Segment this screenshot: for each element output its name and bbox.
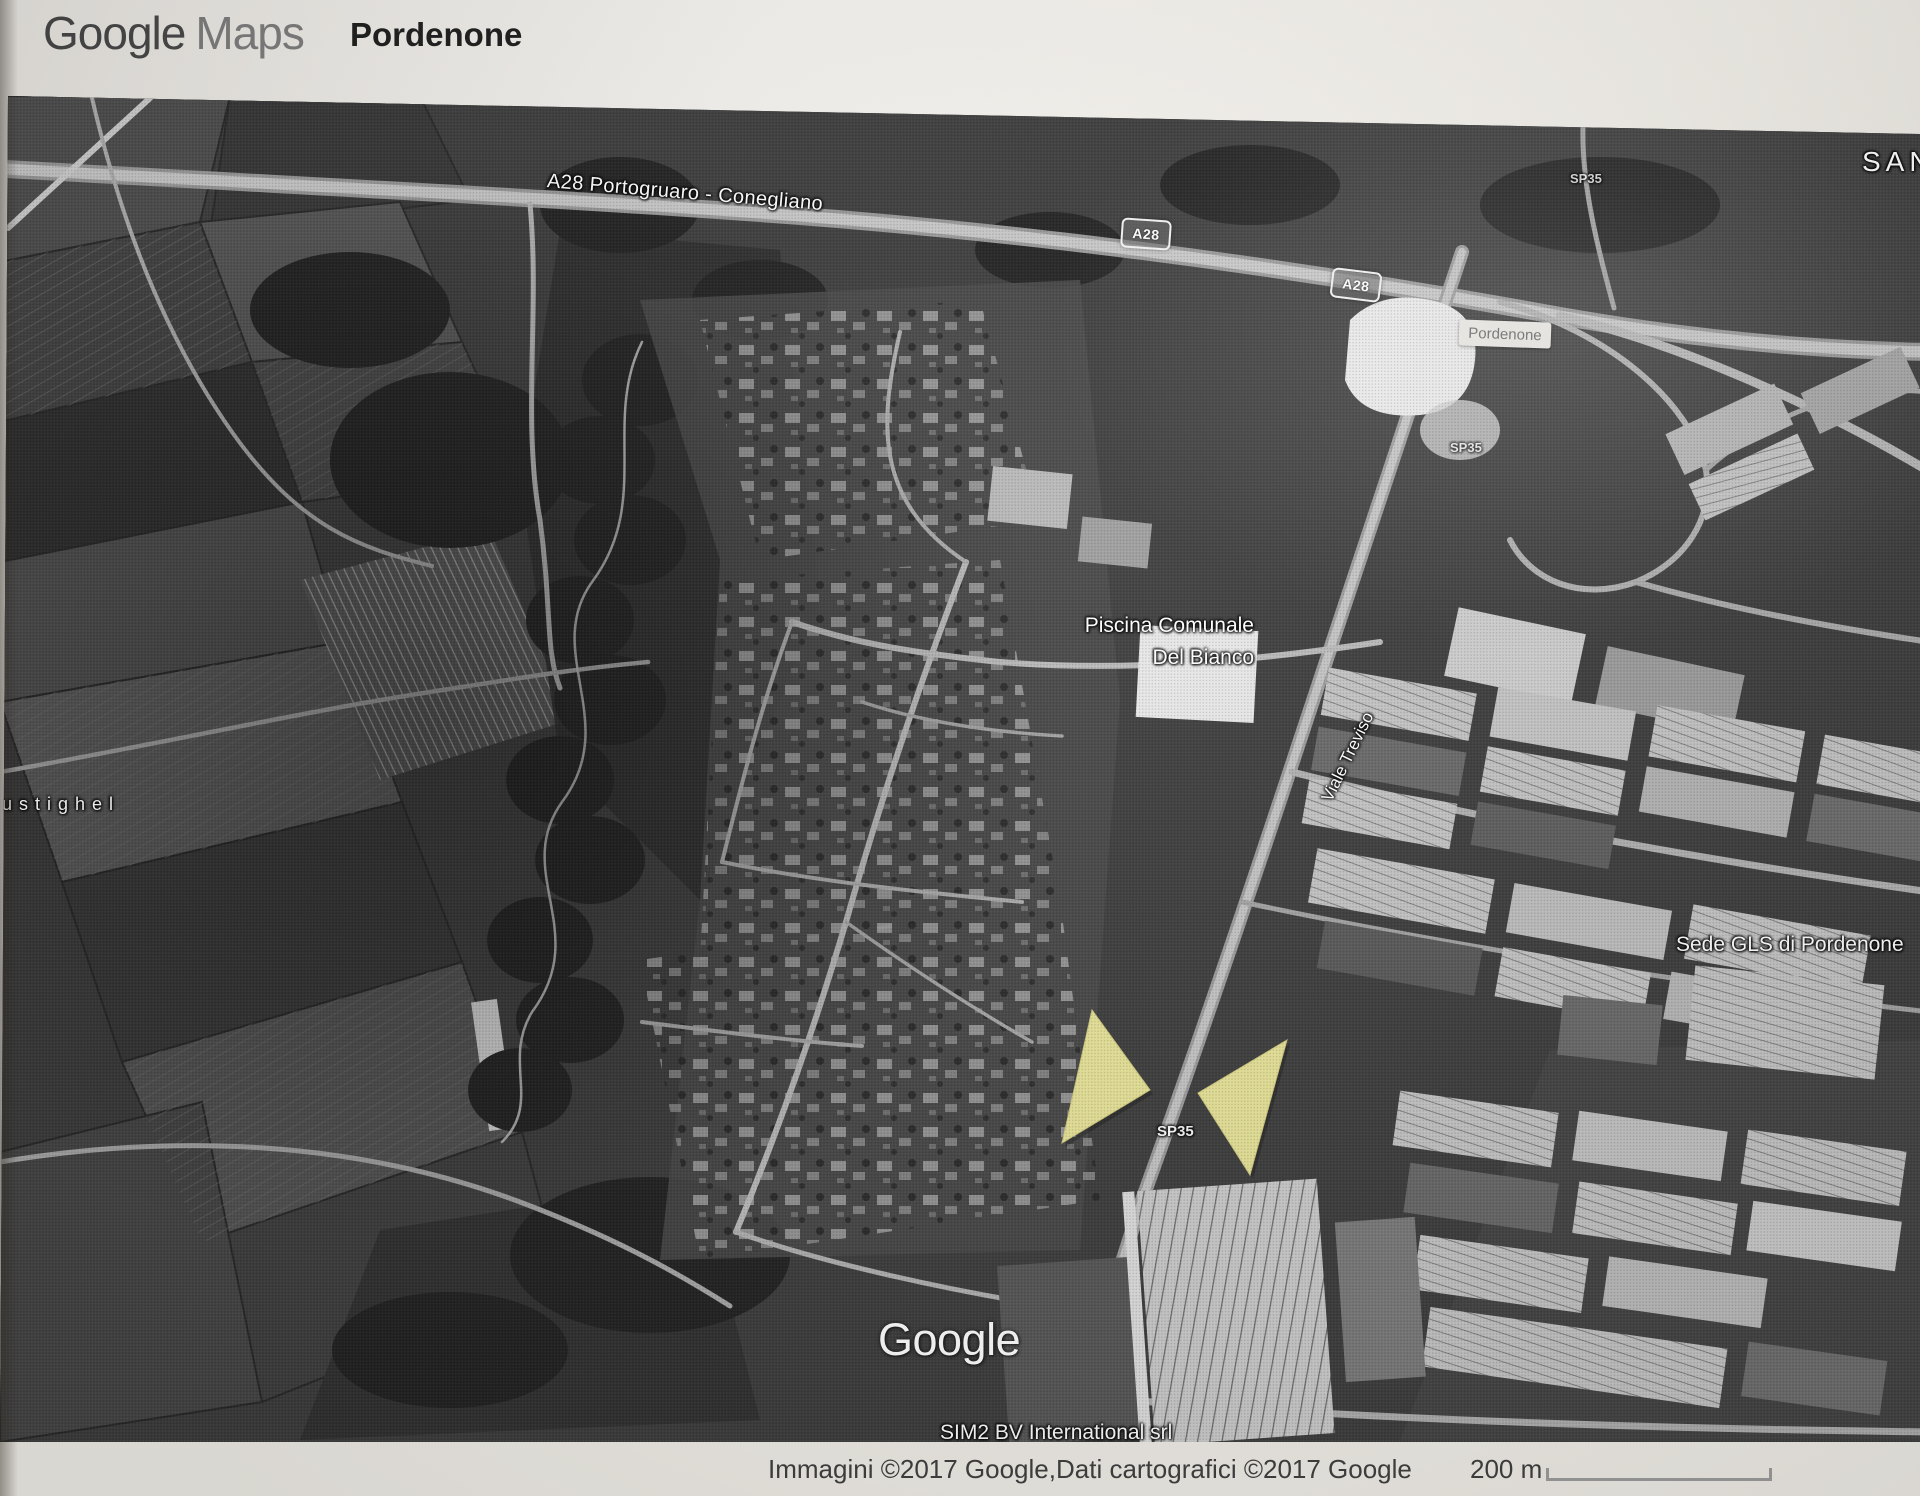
google-maps-logo: GoogleMaps xyxy=(43,6,304,60)
poi-label-piscina-comunale: Piscina Comunale Del Bianco xyxy=(1028,610,1254,673)
poi-label-piscina-line2: Del Bianco xyxy=(1028,642,1254,674)
google-maps-logo-maps: Maps xyxy=(195,7,303,59)
place-label-san-clipped: SAN xyxy=(1862,146,1920,178)
attribution-text: Immagini ©2017 Google,Dati cartografici … xyxy=(768,1454,1412,1485)
google-watermark: Google xyxy=(878,1314,1020,1366)
route-badge-a28-2: A28 xyxy=(1329,267,1382,303)
place-label-ustighel-clipped: ustighel xyxy=(2,794,120,815)
road-label-sp35-mid: SP35 xyxy=(1450,440,1482,455)
route-badge-a28-1: A28 xyxy=(1120,217,1172,250)
road-label-sp35-bottom: SP35 xyxy=(1157,1123,1194,1140)
page-header: GoogleMaps Pordenone xyxy=(0,0,1920,96)
page-title: Pordenone xyxy=(350,16,522,54)
poi-label-piscina-line1: Piscina Comunale xyxy=(1028,610,1254,642)
satellite-map: A28 Portogruaro - Conegliano A28 A28 Por… xyxy=(0,0,1920,1496)
town-label-pordenone: Pordenone xyxy=(1459,319,1552,348)
scale-label: 200 m xyxy=(1470,1454,1542,1485)
scale-bar xyxy=(1546,1468,1772,1481)
google-maps-logo-google: Google xyxy=(43,7,185,59)
road-label-sp35-top: SP35 xyxy=(1570,171,1602,186)
poi-label-sede-gls: Sede GLS di Pordenone xyxy=(1676,933,1904,957)
satellite-imagery xyxy=(0,0,1920,1496)
printed-google-maps-photo: GoogleMaps Pordenone xyxy=(0,0,1920,1496)
